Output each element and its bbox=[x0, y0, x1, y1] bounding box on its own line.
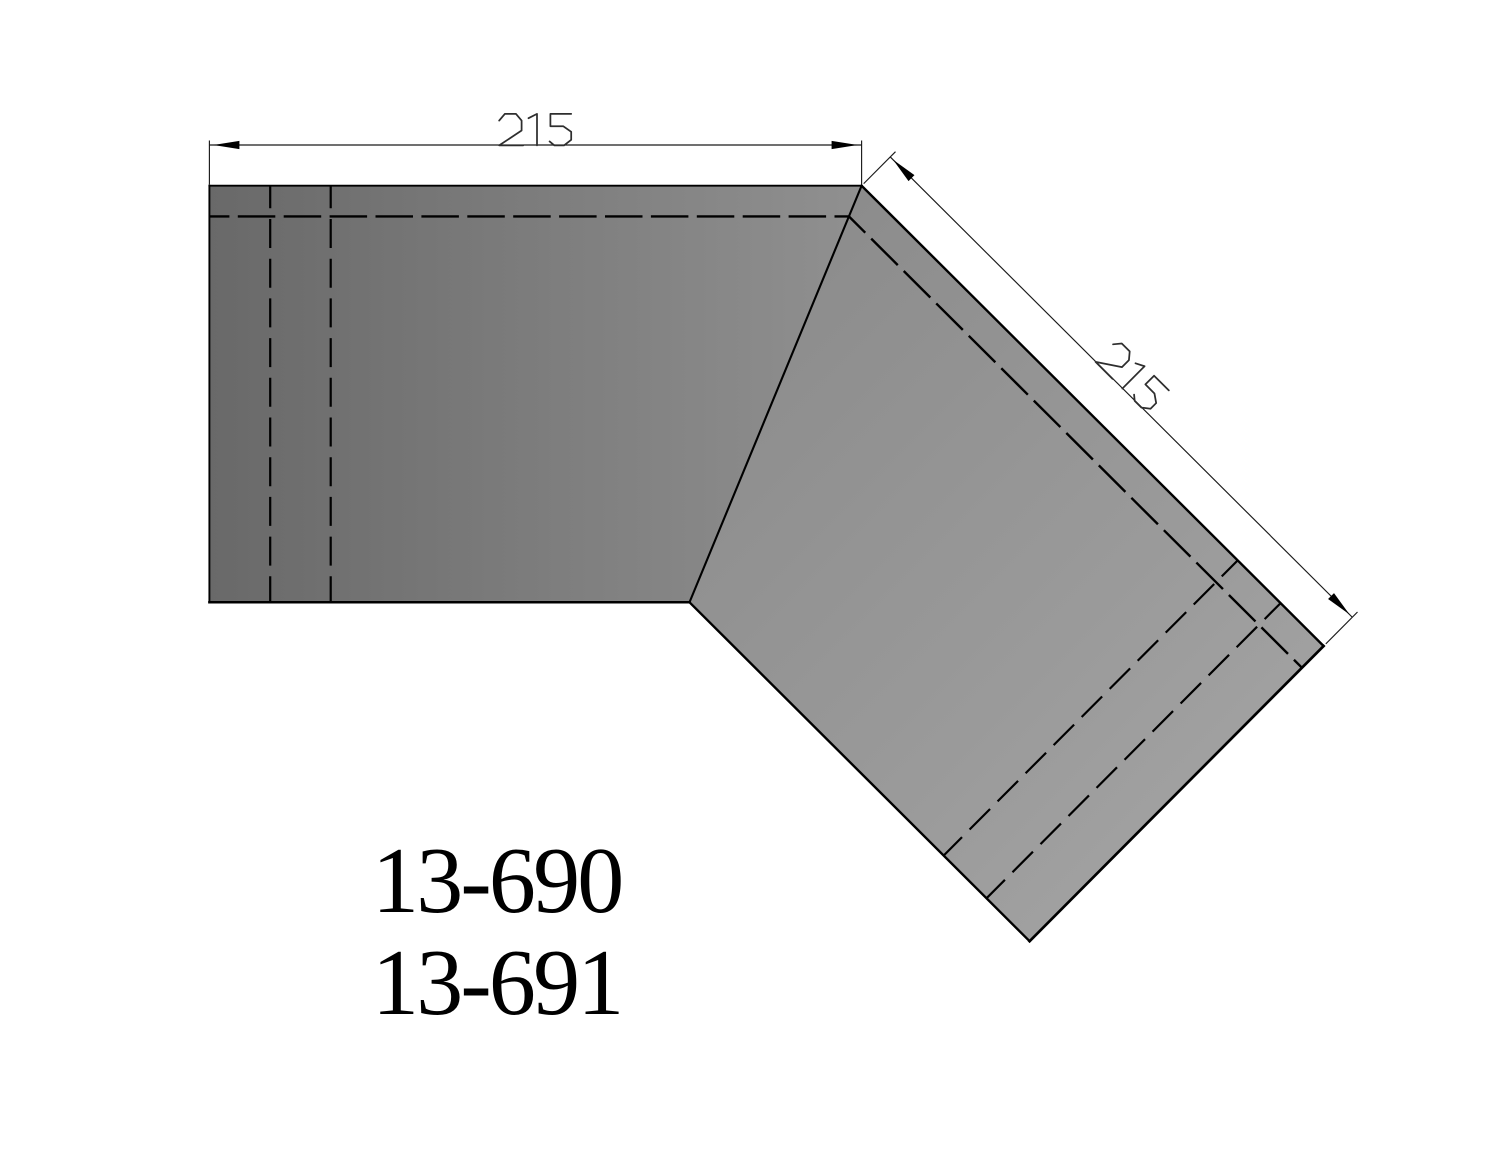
svg-text:13-690: 13-690 bbox=[372, 829, 622, 933]
svg-text:13-691: 13-691 bbox=[372, 931, 622, 1035]
